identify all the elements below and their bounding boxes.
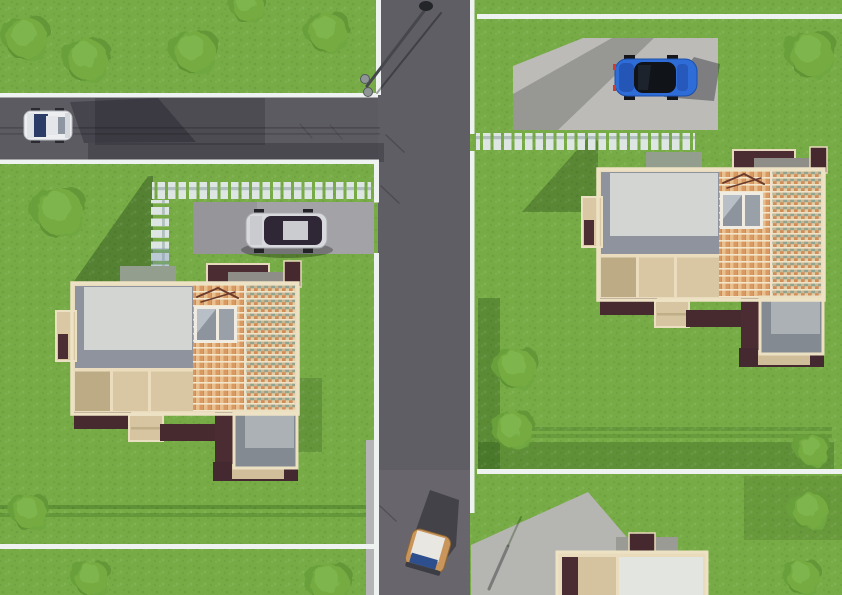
tree-canopy [500, 414, 523, 437]
tile-roof-checker [246, 284, 295, 411]
tree-canopy [801, 437, 820, 456]
car-silver-driveway [241, 209, 333, 258]
maroon-strip [562, 557, 578, 595]
patio-cell-dark [75, 371, 111, 411]
garden-step-line [657, 313, 687, 316]
patio-divider [636, 257, 639, 297]
lot-line [477, 469, 842, 474]
tree-canopy [11, 20, 36, 45]
car-blue-driveway [613, 55, 720, 101]
tree-canopy [315, 567, 339, 591]
lot-line [0, 93, 378, 98]
curb-line [374, 253, 379, 595]
wheel [254, 248, 264, 253]
tree-canopy [179, 34, 204, 59]
tree-canopy [795, 35, 822, 62]
maroon-band-mid [160, 424, 216, 441]
road-shade-band [88, 143, 384, 162]
lamp-base [364, 88, 373, 97]
roof-flat-light [610, 173, 718, 236]
taillight [613, 85, 616, 91]
car-rear-window [58, 117, 65, 134]
scene-canvas [0, 0, 842, 595]
car-hood [250, 216, 262, 245]
tree-canopy [790, 563, 810, 583]
lot-line [0, 544, 375, 549]
curb-line [376, 0, 381, 95]
car-trunk [65, 113, 70, 138]
walkway-slabs [476, 133, 695, 150]
lamp-head [419, 1, 433, 11]
tile-roof-striped [719, 170, 772, 297]
garage-roof-light [245, 414, 294, 448]
walkway-slabs [152, 182, 371, 199]
tree-canopy [42, 192, 71, 221]
light-roof-area [619, 557, 703, 595]
tile-roof-striped [193, 284, 246, 411]
maroon-band-mid [686, 310, 742, 327]
patio-divider [148, 371, 151, 411]
tan-area [578, 557, 616, 595]
tree-canopy [796, 495, 818, 517]
sidewalk-strip [366, 440, 375, 595]
curb-line [374, 160, 379, 203]
tree-canopy [502, 352, 525, 375]
car-hood [619, 63, 634, 92]
tile-roof-seam [244, 284, 247, 411]
entry-porch-maroon [584, 220, 594, 245]
tree-canopy [17, 498, 38, 519]
patio-top-line [75, 368, 193, 372]
garden-step-line [131, 427, 161, 430]
car-roof [46, 116, 58, 135]
wheel [303, 248, 313, 253]
curb-line [470, 0, 475, 134]
tree [304, 563, 352, 595]
garage-roof-light [771, 300, 820, 334]
aerial-neighborhood-render [0, 0, 842, 595]
tree-canopy [72, 42, 97, 67]
skylight-mullion [742, 195, 745, 226]
tile-roof-checker [772, 170, 821, 297]
lot-line [0, 160, 374, 165]
car-roof [283, 221, 308, 240]
patio-divider [674, 257, 677, 297]
stepping-stones-tint [151, 248, 169, 266]
patio-top-line [601, 254, 719, 258]
patio-divider [110, 371, 113, 411]
skylight-glass [745, 195, 760, 226]
divider [616, 557, 619, 595]
scene-root [0, 0, 842, 595]
tile-roof-seam [770, 170, 773, 297]
car-windshield [34, 114, 48, 137]
patio-cell-dark [601, 257, 637, 297]
skylight-glass [219, 309, 234, 340]
car-rear-deck [677, 64, 688, 91]
skylight-mullion [216, 309, 219, 340]
lamp-base [361, 75, 370, 84]
lot-line [477, 14, 842, 19]
entry-porch-maroon [58, 334, 68, 359]
curb-line [470, 151, 475, 513]
tree-canopy [79, 564, 100, 585]
car-hood [27, 113, 34, 138]
roof-flat-light [84, 287, 192, 350]
tree-canopy [313, 16, 336, 39]
taillight [613, 64, 616, 70]
